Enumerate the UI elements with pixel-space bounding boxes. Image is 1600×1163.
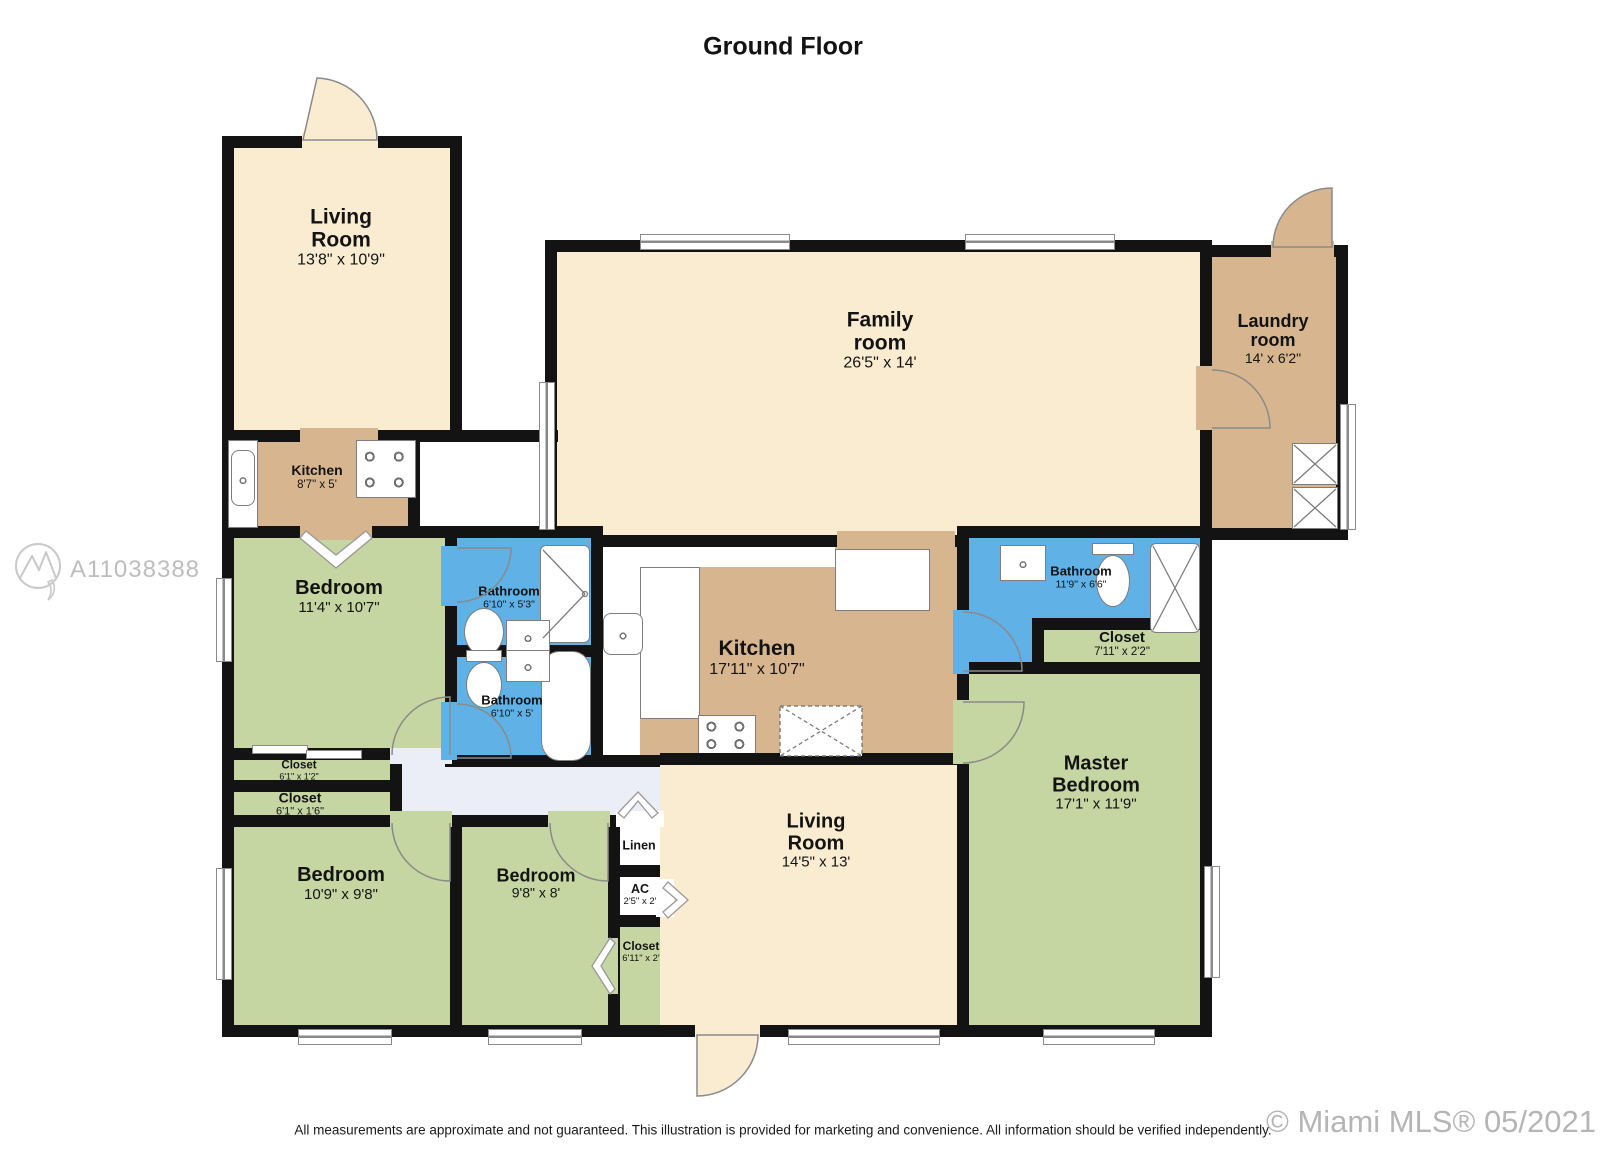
sink-master-fixture xyxy=(1000,545,1046,581)
shower-master-fixture xyxy=(1150,543,1200,633)
room-living-room-upper xyxy=(222,136,462,442)
floor-plan-canvas: Ground Floor A11038388 xyxy=(0,0,1600,1163)
label-bedroom-bm: Bedroom 9'8" x 8' xyxy=(496,867,575,902)
page-title: Ground Floor xyxy=(703,33,863,62)
opening-master-door xyxy=(953,700,969,764)
label-bath-lower: Bathroom 6'10" x 5' xyxy=(481,692,542,721)
window-master-right xyxy=(1204,866,1220,978)
washer-fixture xyxy=(1292,443,1338,485)
window-living-lower xyxy=(788,1029,940,1045)
label-laundry: Laundry room 14' x 6'2" xyxy=(1228,312,1318,366)
label-ac: AC 2'5" x 2' xyxy=(624,880,657,908)
opening-bath-lower xyxy=(441,702,457,760)
label-kitchen-main: Kitchen 17'11" x 10'7" xyxy=(709,638,804,678)
toilet-lower-tank-fixture xyxy=(466,650,502,662)
kitchen-sink-fixture xyxy=(603,613,643,655)
toilet-upper-fixture xyxy=(464,608,504,656)
mls-logo-icon xyxy=(8,540,70,602)
label-linen: Linen xyxy=(622,836,655,853)
sink-upper-fixture xyxy=(506,620,550,654)
label-closet-1: Closet 6'1" x 1'2" xyxy=(279,756,318,783)
dryer-fixture xyxy=(1292,487,1338,529)
front-door-arc xyxy=(303,78,377,140)
opening-entry-door xyxy=(695,1025,760,1039)
room-bedroom-bottom-left xyxy=(222,815,462,1037)
kitchen-small-stove-fixture xyxy=(356,440,416,498)
window-master-bottom xyxy=(1043,1029,1155,1045)
label-bath-upper: Bathroom 6'10" x 5'3" xyxy=(478,583,539,612)
label-master-bedroom: Master Bedroom 17'1" x 11'9" xyxy=(1036,753,1156,812)
window-bedroom-left xyxy=(216,578,232,662)
room-bedroom-bottom-mid xyxy=(450,815,620,1037)
label-living-room-upper: Living Room 13'8" x 10'9" xyxy=(296,207,386,270)
window-bedroom-bm-bottom xyxy=(488,1029,582,1045)
sliding-door-closet-1 xyxy=(252,745,308,754)
label-closet-master: Closet 7'11" x 2'2" xyxy=(1094,629,1150,659)
label-bedroom-left: Bedroom 11'4" x 10'7" xyxy=(295,578,383,616)
entry-door-arc xyxy=(697,1035,758,1096)
watermark-mls: © Miami MLS® 05/2021 xyxy=(1266,1104,1596,1140)
label-closet-2: Closet 6'1" x 1'6" xyxy=(276,789,324,818)
toilet-master-tank-fixture xyxy=(1092,543,1134,555)
refrigerator-fixture xyxy=(835,549,930,611)
opening-family-laundry xyxy=(1196,366,1216,430)
room-bedroom-left xyxy=(222,526,457,762)
label-bath-master: Bathroom 11'9" x 6'6" xyxy=(1050,563,1111,592)
window-laundry xyxy=(1340,404,1356,530)
window-bedroom-bl-bottom xyxy=(298,1029,392,1045)
kitchen-small-sink-fixture xyxy=(231,450,255,506)
opening-linen xyxy=(616,811,664,827)
opening-family-kitchen xyxy=(837,531,955,549)
wall-stub xyxy=(408,430,558,442)
room-family xyxy=(545,240,1212,547)
label-closet-center: Closet 6'11" x 2' xyxy=(622,937,659,965)
stove-fixture xyxy=(698,715,756,755)
room-master-bedroom xyxy=(957,662,1212,1037)
opening-bath-master xyxy=(953,610,969,674)
window-family-2 xyxy=(965,234,1115,250)
opening-bath-upper xyxy=(441,546,457,606)
window-family-1 xyxy=(640,234,790,250)
window-bedroom-bl-left xyxy=(216,868,232,980)
label-family-room: Family room 26'5" x 14' xyxy=(833,310,928,373)
window-family-left xyxy=(539,382,555,530)
label-living-room-lower: Living Room 14'5" x 13' xyxy=(771,811,861,870)
label-kitchen-small: Kitchen 8'7" x 5' xyxy=(291,462,342,492)
opening-laundry-exit xyxy=(1271,241,1334,259)
opening-bedroom-bm xyxy=(548,811,610,827)
room-living-room-lower xyxy=(660,753,972,1037)
opening-ac xyxy=(656,879,674,917)
watermark-listing-id: A11038388 xyxy=(70,556,200,584)
kitchen-counter-fixture xyxy=(640,567,700,719)
label-bedroom-bl: Bedroom 10'9" x 9'8" xyxy=(297,865,385,903)
disclaimer-text: All measurements are approximate and not… xyxy=(294,1123,1271,1138)
sink-lower-fixture xyxy=(506,650,550,682)
opening-kitchen-bedroom xyxy=(300,524,372,540)
opening-bedroom-bl xyxy=(390,811,452,827)
opening-front-door xyxy=(302,132,378,148)
laundry-exit-door-arc xyxy=(1273,188,1332,247)
opening-closet-center xyxy=(604,938,618,994)
